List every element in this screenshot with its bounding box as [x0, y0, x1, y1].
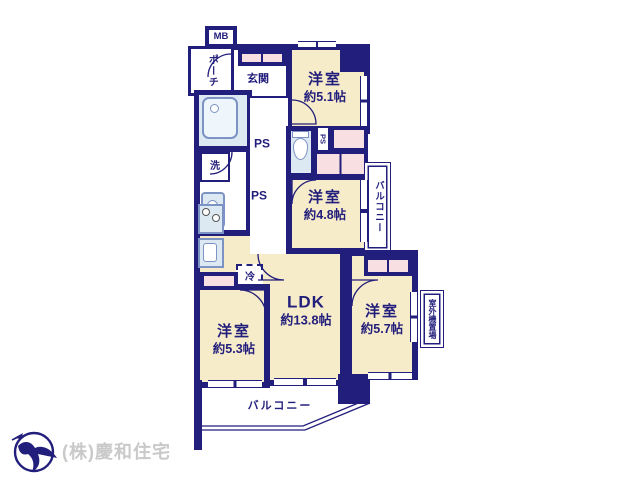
window-bedroom-57-right [410, 292, 418, 342]
closet-bedroom-53 [200, 272, 238, 290]
exterior-wall-left [194, 380, 202, 450]
fridge-label: 冷 [245, 272, 255, 285]
window-ldk-bottom [274, 378, 336, 386]
porch-label: ポーチ [205, 55, 218, 88]
bedroom-48-label: 洋室 約4.8帖 [304, 189, 346, 223]
floorplan-page: { "colors": { "wall_navy": "#221e7b", "r… [0, 0, 640, 480]
bedroom-57-size: 約5.7帖 [361, 322, 403, 338]
shoe-cabinet [238, 50, 286, 66]
ps-label-3: PS [318, 134, 327, 144]
mb-label: MB [214, 31, 229, 43]
ldk-name: LDK [280, 291, 331, 312]
bedroom-53-name: 洋室 [213, 323, 255, 342]
bedroom-48-name: 洋室 [304, 189, 346, 208]
ldk-size: 約13.8帖 [280, 313, 331, 329]
bedroom-53-label: 洋室 約5.3帖 [213, 323, 255, 357]
stove-burner-1 [202, 208, 210, 216]
window-bedroom-51-right [360, 76, 368, 126]
bedroom-51-name: 洋室 [304, 71, 346, 90]
bedroom-53-size: 約5.3帖 [213, 342, 255, 358]
bedroom-51-label: 洋室 約5.1帖 [304, 71, 346, 105]
bathtub [202, 97, 238, 139]
side-balcony-label: バルコニー [372, 181, 384, 234]
balcony-pillar [338, 374, 370, 404]
outdoor-unit-label: 室外機置場 [427, 299, 437, 339]
closet-upper [330, 126, 368, 152]
ps-label-2: PS [251, 189, 267, 204]
closet-bedroom-57 [364, 256, 412, 276]
stove-burner-2 [212, 214, 220, 222]
window-bedroom-53-bottom [208, 380, 262, 388]
corner-wall-block [340, 44, 370, 72]
window-bedroom-48-right [360, 180, 368, 242]
bedroom-48-size: 約4.8帖 [304, 208, 346, 224]
bottom-balcony-label: バルコニー [248, 400, 313, 414]
entrance-label: 玄関 [247, 73, 269, 87]
bedroom-57-label: 洋室 約5.7帖 [361, 303, 403, 337]
ldk-label: LDK 約13.8帖 [280, 291, 331, 329]
company-name: (株)慶和住宅 [62, 438, 171, 464]
kitchen-sink-basin [203, 243, 217, 262]
toilet-tank [292, 131, 309, 138]
bathtub-drain [210, 104, 219, 113]
bedroom-51-size: 約5.1帖 [304, 90, 346, 106]
window-bedroom-57-bottom [368, 372, 412, 380]
ps-label-1: PS [254, 137, 270, 152]
bedroom-57-name: 洋室 [361, 303, 403, 322]
company-logo-icon [8, 424, 64, 478]
hallway [250, 98, 288, 254]
window-bedroom-51-top [298, 41, 336, 48]
wash-label: 洗 [210, 161, 220, 174]
